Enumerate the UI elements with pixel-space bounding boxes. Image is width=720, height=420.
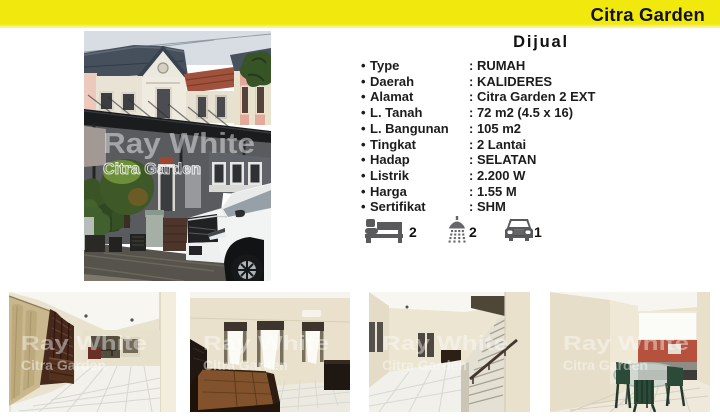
svg-text:Citra Garden: Citra Garden [21,358,106,373]
svg-text:Citra Garden: Citra Garden [203,358,288,373]
svg-text:Ray White: Ray White [21,333,147,355]
svg-text:Ray White: Ray White [563,333,689,355]
svg-text:Citra Garden: Citra Garden [103,161,201,178]
svg-text:Citra Garden: Citra Garden [382,358,467,373]
svg-text:Citra Garden: Citra Garden [563,358,648,373]
svg-text:Ray White: Ray White [103,128,255,160]
svg-text:Ray White: Ray White [382,333,508,355]
svg-text:Ray White: Ray White [203,333,329,355]
